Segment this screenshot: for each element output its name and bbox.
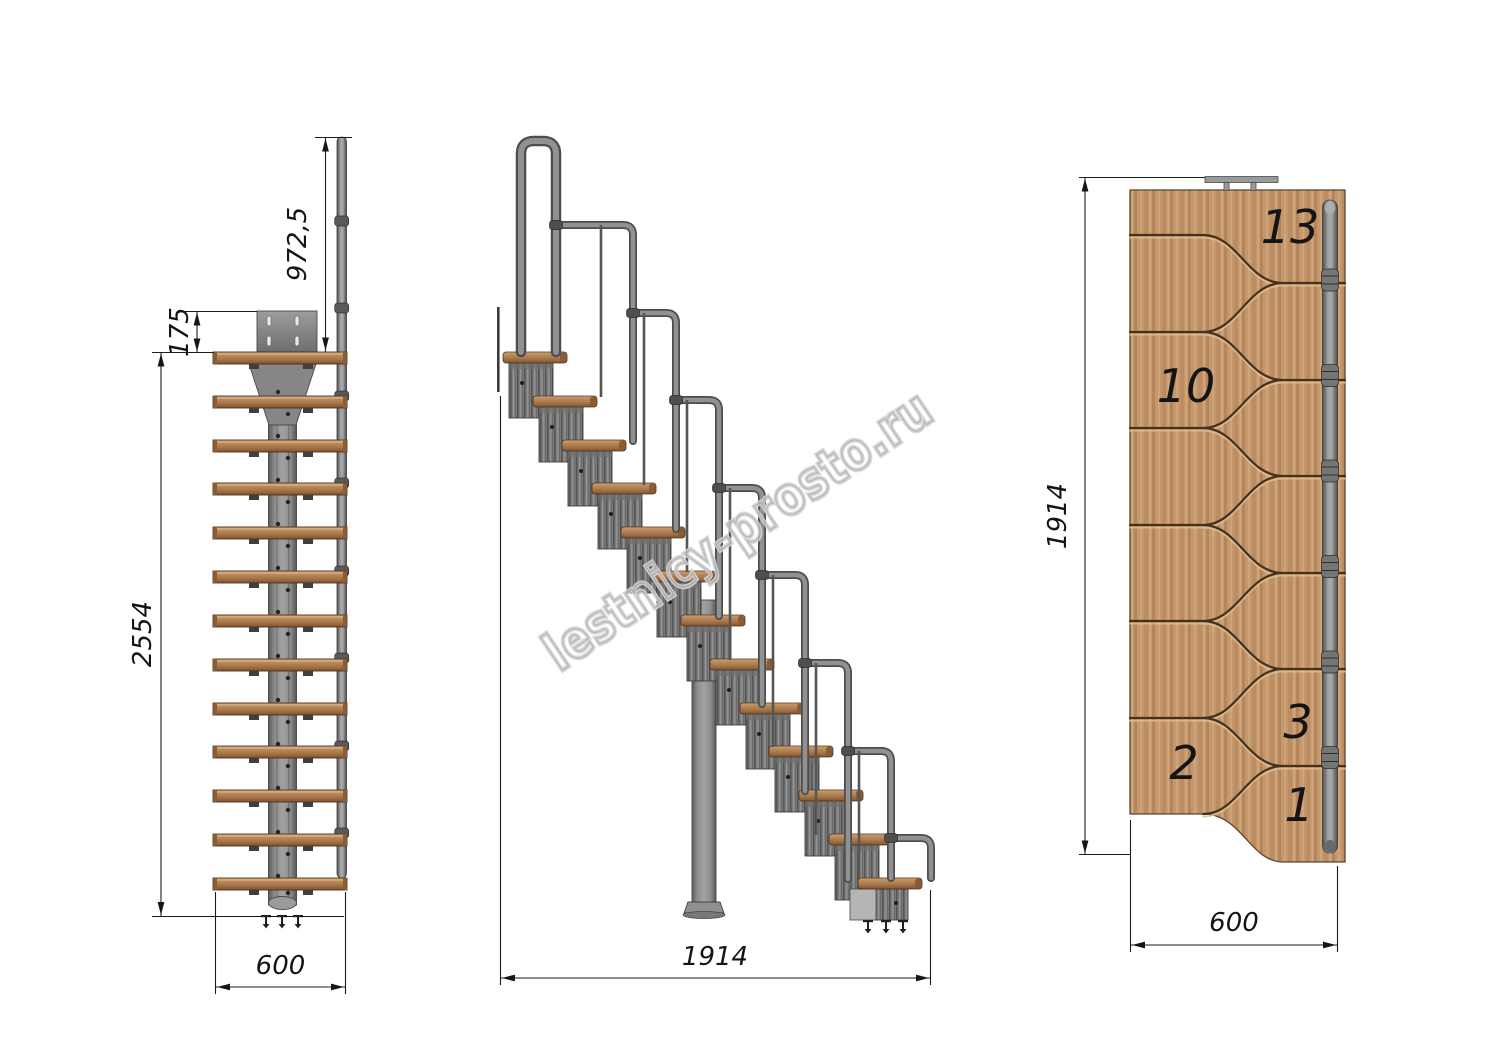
drawing-page: 972,5 175 2554 600 <box>0 0 1500 1061</box>
dim-label-side-length: 1914 <box>682 942 748 972</box>
plan-handrail <box>1322 200 1339 853</box>
side-bottom-module <box>850 878 922 934</box>
dim-label-front-top-module: 175 <box>165 307 195 357</box>
front-mounting-plate <box>257 311 317 352</box>
side-wall-bracket <box>497 307 500 392</box>
watermark: lestnicy-prosto.ru lestnicy-prosto.ru <box>533 379 944 683</box>
step-number-13: 13 <box>1261 200 1320 254</box>
plan-view: 13 10 3 2 1 1914 600 <box>1043 177 1345 953</box>
dimension-front-total-height: 2554 <box>128 353 344 917</box>
plan-wall-bracket <box>1205 177 1278 191</box>
dim-label-front-width: 600 <box>256 951 306 981</box>
dim-label-front-rail-height: 972,5 <box>283 207 313 281</box>
step-number-1: 1 <box>1284 778 1313 832</box>
step-number-3: 3 <box>1283 695 1312 749</box>
step-number-2: 2 <box>1169 736 1198 790</box>
staircase-technical-drawing: 972,5 175 2554 600 <box>0 0 1500 1061</box>
step-number-10: 10 <box>1157 359 1216 413</box>
dim-label-plan-length: 1914 <box>1043 483 1073 549</box>
front-handrail-post <box>335 137 349 878</box>
dim-label-front-total-height: 2554 <box>128 601 158 667</box>
front-view: 972,5 175 2554 600 <box>128 137 352 994</box>
watermark-text: lestnicy-prosto.ru <box>533 379 944 683</box>
dimension-front-top-module: 175 <box>165 307 257 357</box>
dim-label-plan-width: 600 <box>1209 908 1259 938</box>
